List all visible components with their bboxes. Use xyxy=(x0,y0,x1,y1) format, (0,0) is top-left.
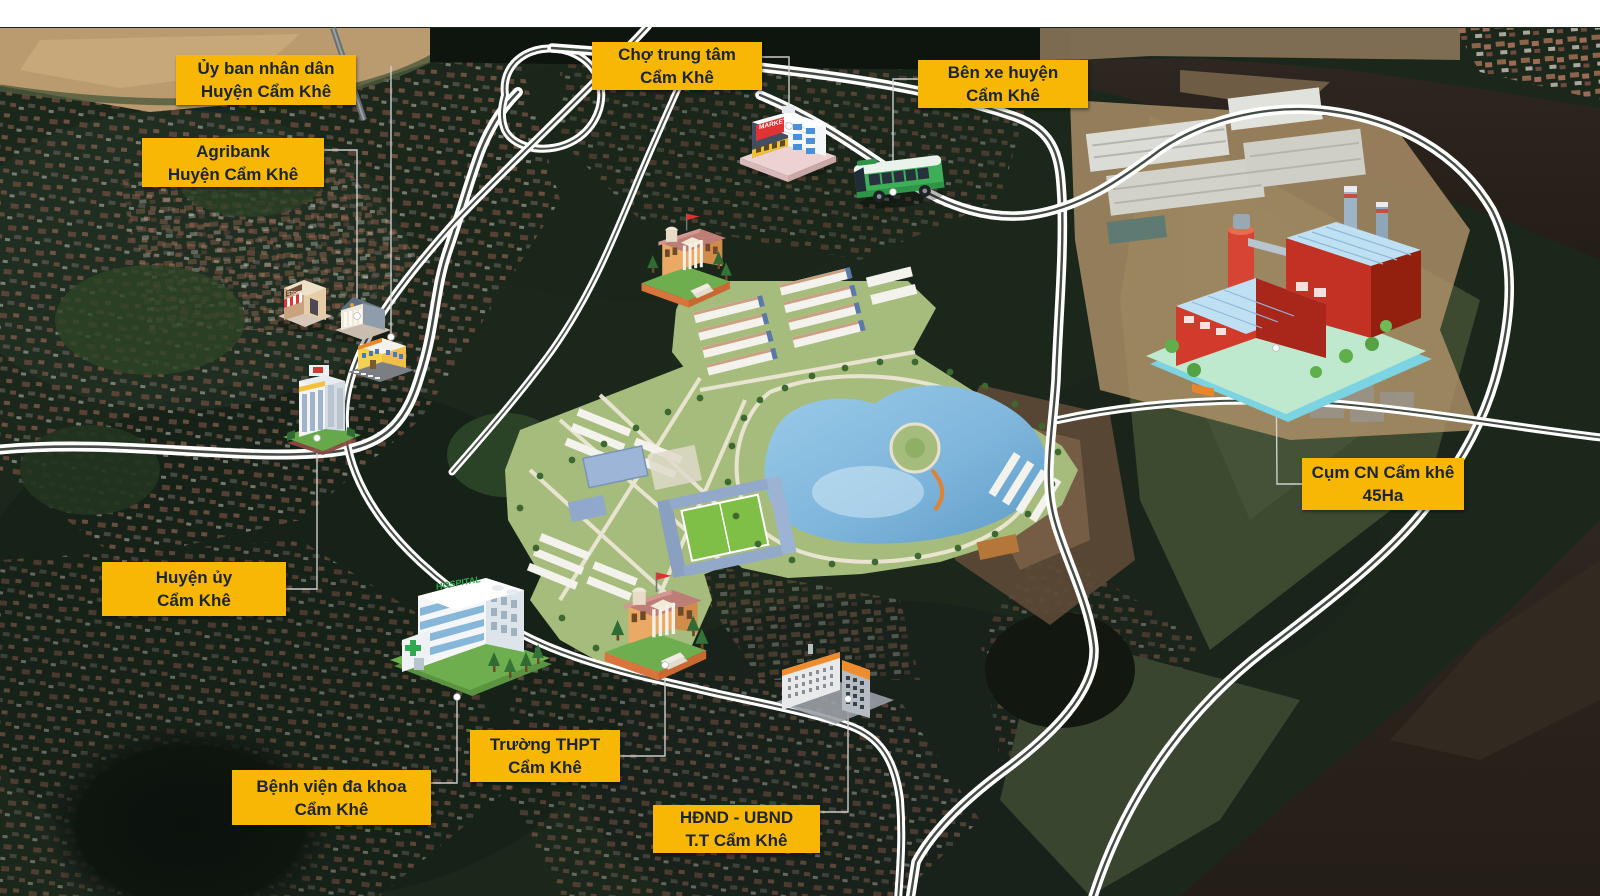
label-line: Ủy ban nhân dân xyxy=(176,57,356,80)
label-line: 45Ha xyxy=(1302,484,1464,507)
label-line: Cẩm Khê xyxy=(918,84,1088,107)
label-line: Huyện ủy xyxy=(102,566,286,589)
label-line: Cẩm Khê xyxy=(102,589,286,612)
store-icon[interactable]: STORE xyxy=(278,280,332,332)
label-line: Cẩm Khê xyxy=(592,66,762,89)
label-hdnd-ubnd: HĐND - UBND T.T Cẩm Khê xyxy=(653,805,820,853)
label-line: Cẩm Khê xyxy=(470,756,620,779)
label-line: Agribank xyxy=(142,140,324,163)
label-line: Trường THPT xyxy=(470,733,620,756)
label-ben-xe-huyen: Bên xe huyện Cẩm Khê xyxy=(918,60,1088,108)
label-line: Cẩm Khê xyxy=(232,798,431,821)
label-benh-vien: Bệnh viện đa khoa Cẩm Khê xyxy=(232,770,431,825)
label-line: Huyện Cẩm Khê xyxy=(142,163,324,186)
satellite-map: STORE xyxy=(0,0,1600,896)
label-line: Bệnh viện đa khoa xyxy=(232,775,431,798)
label-cho-trung-tam: Chợ trung tâm Cẩm Khê xyxy=(592,42,762,90)
label-line: HĐND - UBND xyxy=(653,806,820,829)
label-line: Bên xe huyện xyxy=(918,61,1088,84)
label-cum-cn: Cụm CN Cẩm khê 45Ha xyxy=(1302,458,1464,510)
label-line: T.T Cẩm Khê xyxy=(653,829,820,852)
label-line: Huyện Cẩm Khê xyxy=(176,80,356,103)
label-uy-ban-nhan-dan: Ủy ban nhân dân Huyện Cẩm Khê xyxy=(176,55,356,105)
top-margin xyxy=(0,0,1600,27)
label-truong-thpt: Trường THPT Cẩm Khê xyxy=(470,730,620,782)
label-agribank: Agribank Huyện Cẩm Khê xyxy=(142,138,324,187)
map-canvas: STORE xyxy=(0,0,1600,896)
label-line: Chợ trung tâm xyxy=(592,43,762,66)
label-huyen-uy: Huyện ủy Cẩm Khê xyxy=(102,562,286,616)
label-line: Cụm CN Cẩm khê xyxy=(1302,461,1464,484)
